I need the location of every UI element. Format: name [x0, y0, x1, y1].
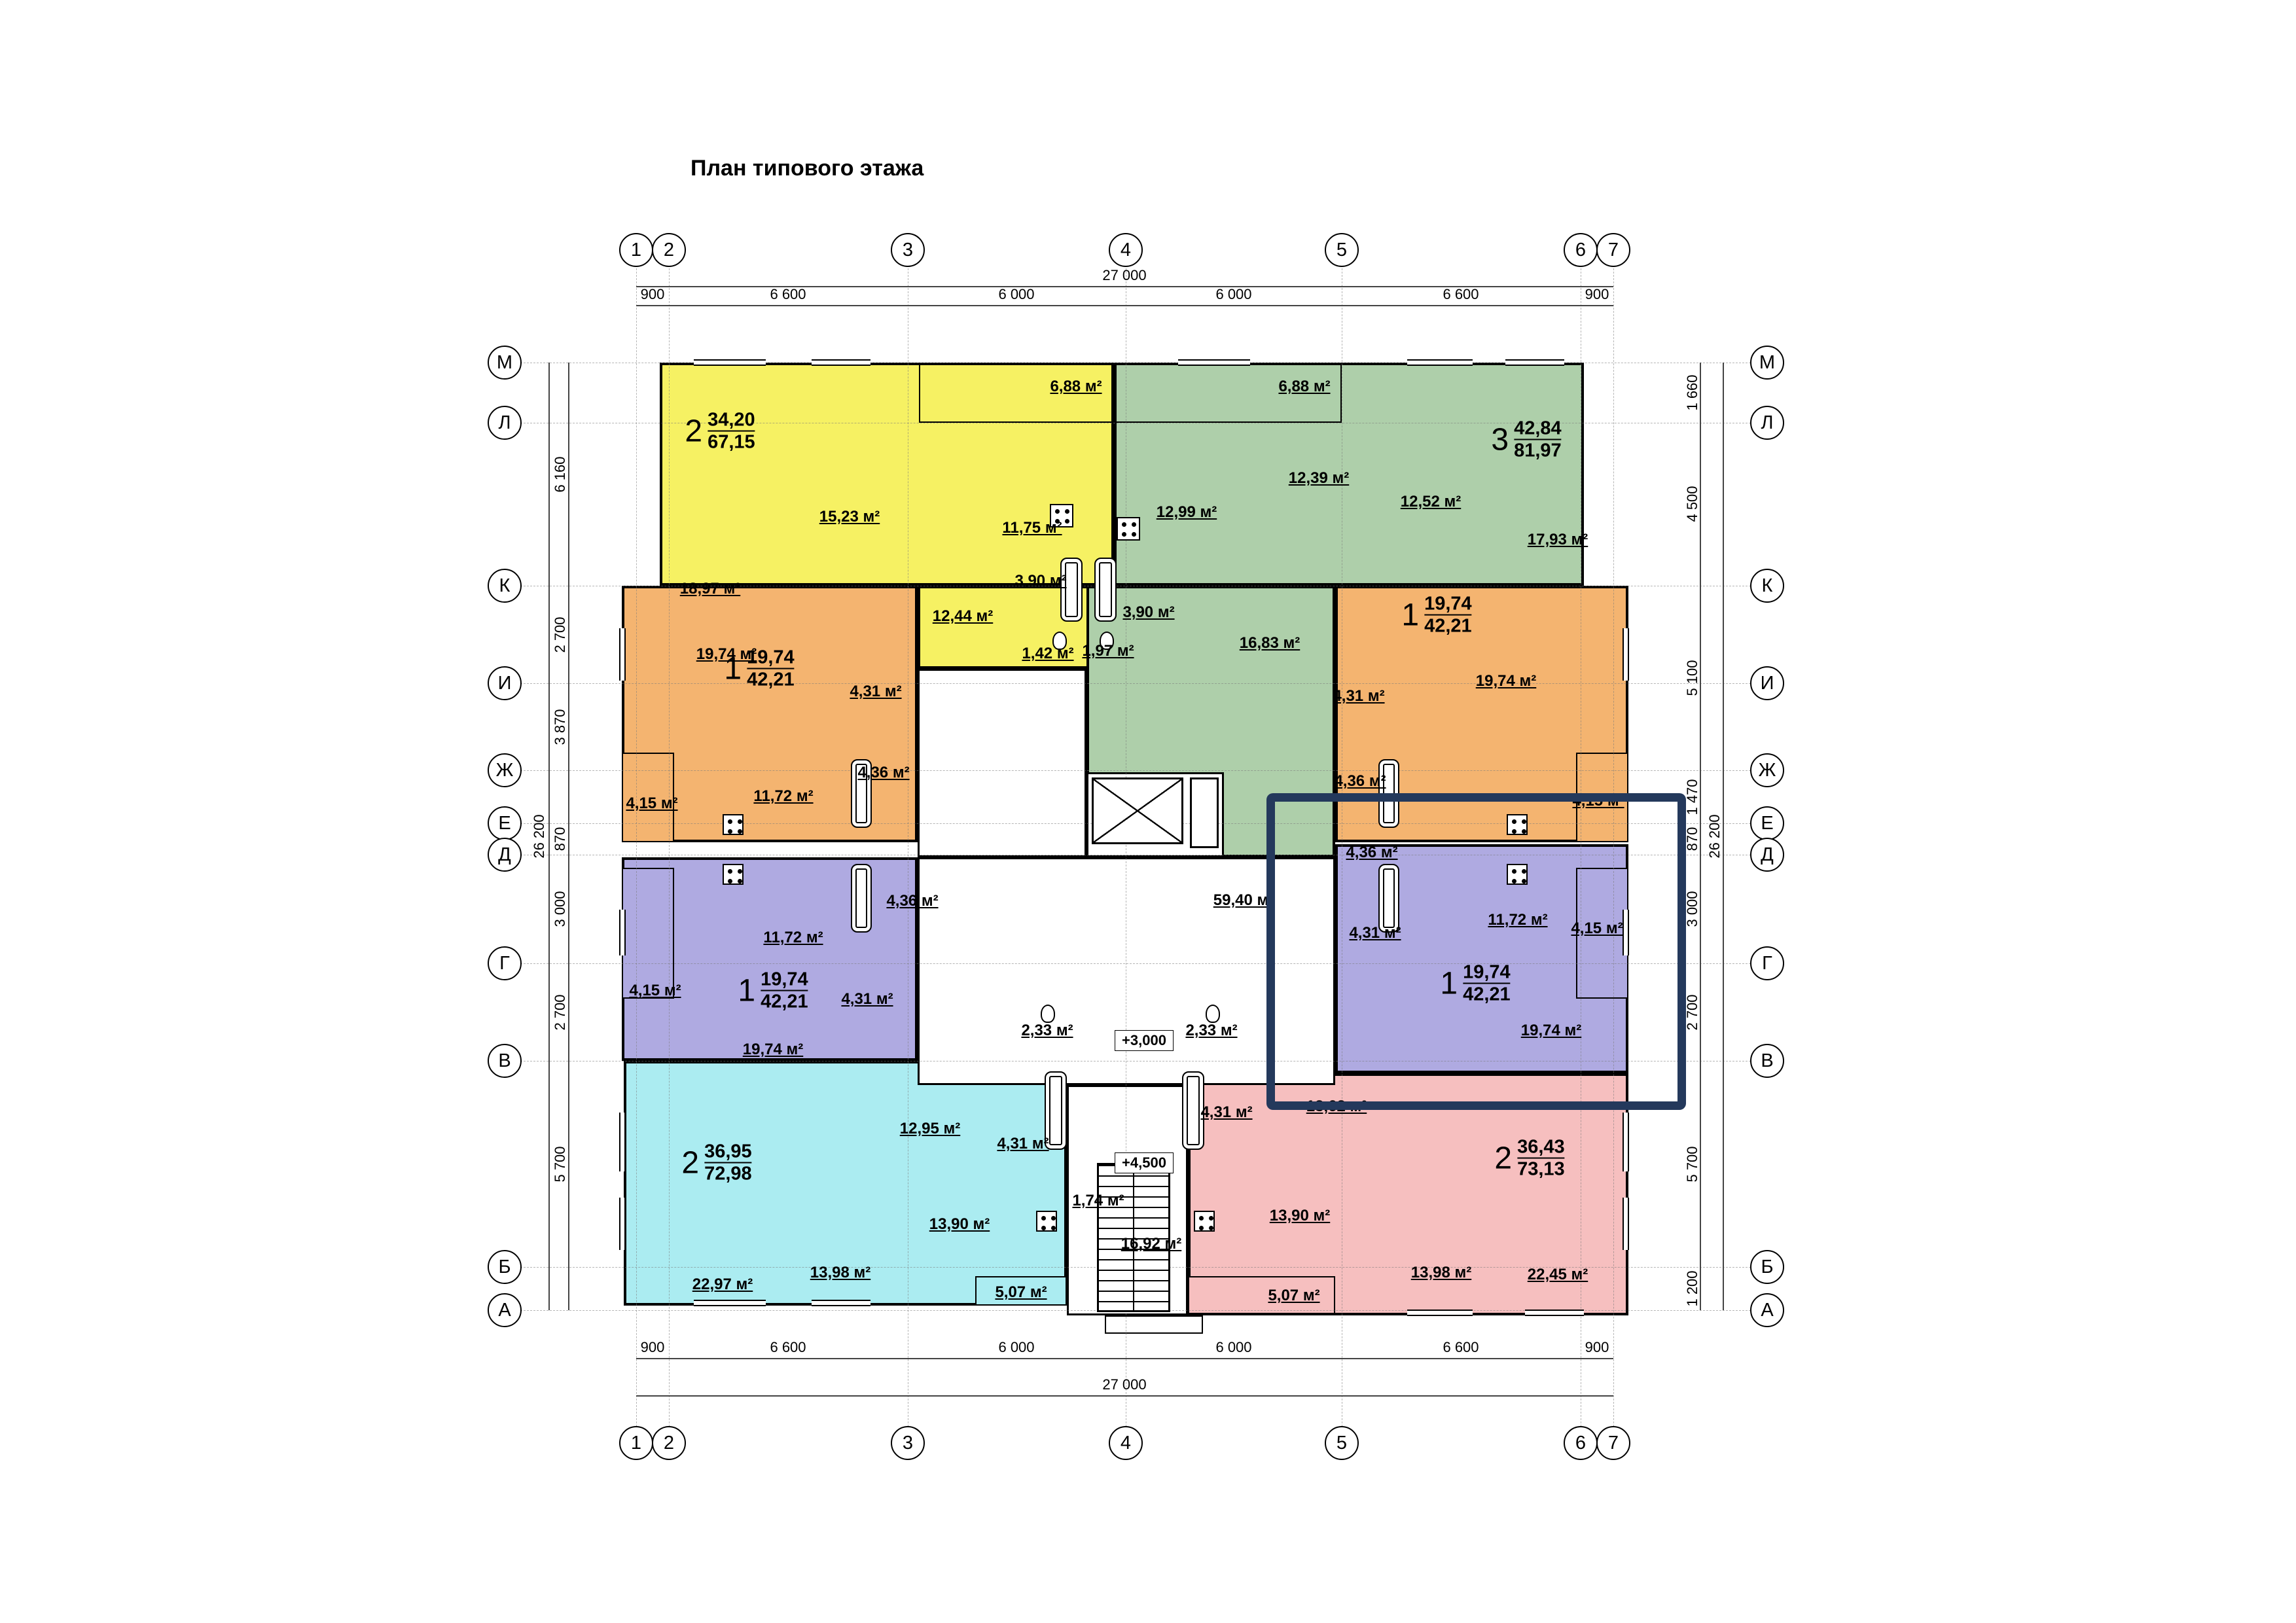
window	[694, 1300, 766, 1306]
dimension-total-label: 26 200	[1706, 814, 1723, 858]
window	[1623, 628, 1629, 681]
room-area-label: 12,44 м²	[933, 607, 993, 626]
window	[619, 910, 626, 955]
room-area-label: 2,33 м²	[1185, 1022, 1237, 1040]
entrance-porch	[1105, 1315, 1203, 1334]
grid-line	[520, 683, 1754, 684]
axis-circle-row: К	[1750, 569, 1784, 603]
dimension-label: 6 600	[770, 1339, 806, 1356]
axis-circle-row: Г	[1750, 946, 1784, 980]
window	[1623, 1198, 1629, 1250]
rooms-count: 3	[1491, 422, 1509, 458]
axis-circle-col: 5	[1325, 233, 1359, 267]
dimension-line	[636, 1358, 1613, 1359]
axis-circle-row: Л	[488, 406, 522, 440]
room-area-label: 13,90 м²	[1270, 1207, 1330, 1225]
dimension-label: 900	[1585, 286, 1609, 303]
room-area-label: 12,39 м²	[1289, 469, 1349, 488]
axis-circle-col: 3	[891, 233, 925, 267]
dimension-label: 6 000	[998, 286, 1034, 303]
dimension-label: 1 660	[1684, 374, 1701, 410]
room-area-label: 4,36 м²	[1334, 772, 1386, 791]
dimension-label: 5 700	[1684, 1146, 1701, 1182]
total-area: 67,15	[708, 432, 755, 453]
room-area-label: 11,75 м²	[1002, 519, 1062, 537]
apartment-label-green: 3 42,8481,97	[1491, 418, 1561, 462]
room-area-label: 11,72 м²	[763, 929, 823, 947]
axis-circle-row: А	[488, 1293, 522, 1327]
total-area: 42,21	[1424, 616, 1472, 637]
axis-circle-row: Ж	[488, 753, 522, 787]
axis-circle-col: 5	[1325, 1426, 1359, 1460]
stove-icon	[723, 864, 744, 885]
rooms-count: 2	[681, 1145, 699, 1181]
window	[1178, 359, 1250, 366]
elevator-shaft-small	[1190, 777, 1219, 848]
room-area-label: 22,45 м²	[1528, 1266, 1588, 1284]
room-area-label: 6,88 м²	[1050, 378, 1102, 396]
axis-circle-col: 3	[891, 1426, 925, 1460]
axis-circle-row: Л	[1750, 406, 1784, 440]
window	[1525, 1310, 1584, 1316]
room-area-label: 15,23 м²	[819, 508, 880, 526]
room-area-label: 3,90 м²	[1122, 603, 1174, 622]
room-area-label: 13,98 м²	[810, 1264, 870, 1282]
dimension-total-label: 26 200	[531, 814, 548, 858]
dimension-label: 900	[641, 1339, 665, 1356]
window	[812, 359, 870, 366]
window	[812, 1300, 870, 1306]
stove-icon	[1036, 1211, 1057, 1232]
axis-circle-col: 7	[1596, 1426, 1630, 1460]
living-area: 19,74	[761, 969, 808, 991]
dimension-label: 900	[641, 286, 665, 303]
stove-icon	[723, 814, 744, 835]
apartment-label-cyan: 2 36,9572,98	[681, 1141, 751, 1185]
level-mark: +4,500	[1115, 1152, 1174, 1173]
axis-circle-row: Б	[1750, 1250, 1784, 1284]
closet-area-label: 1,74 м²	[1072, 1192, 1124, 1210]
rooms-count: 2	[1494, 1141, 1512, 1177]
dimension-label: 3 870	[552, 709, 569, 745]
grid-line	[636, 265, 637, 1430]
rooms-count: 2	[685, 414, 702, 450]
axis-circle-row: Ж	[1750, 753, 1784, 787]
axis-circle-row: В	[1750, 1044, 1784, 1078]
balcony-purple-left	[622, 868, 674, 999]
grid-line	[520, 770, 1754, 771]
room-area-label: 4,15 м²	[629, 982, 681, 1000]
living-area: 19,74	[1424, 594, 1472, 616]
room-area-label: 13,90 м²	[929, 1215, 990, 1234]
axis-circle-row: И	[488, 666, 522, 700]
total-area: 72,98	[704, 1164, 752, 1185]
room-area-label: 4,31 м²	[841, 990, 893, 1008]
dimension-line	[548, 363, 550, 1310]
axis-circle-row: Б	[488, 1250, 522, 1284]
apartment-label-pink: 2 36,4373,13	[1494, 1137, 1564, 1181]
dimension-label: 4 500	[1684, 486, 1701, 522]
rooms-count: 1	[1401, 597, 1419, 633]
room-area-label: 4,31 м²	[1333, 687, 1384, 705]
floor-plan-page: { "title": "План типового этажа", "axes"…	[0, 0, 2296, 1623]
dimension-label: 6 000	[998, 1339, 1034, 1356]
axis-circle-row: Д	[1750, 838, 1784, 872]
room-area-label: 11,72 м²	[753, 787, 813, 806]
room-area-label: 2,33 м²	[1021, 1022, 1073, 1040]
dimension-label: 6 000	[1215, 1339, 1251, 1356]
bathtub-icon	[851, 864, 872, 933]
dimension-label: 27 000	[1102, 267, 1146, 284]
window	[1505, 359, 1564, 366]
elevator-icon	[1092, 777, 1183, 844]
room-area-label: 3,90 м²	[1014, 572, 1066, 590]
dimension-label: 27 000	[1102, 1376, 1146, 1393]
vestibule-area-label: 16,92 м²	[1121, 1235, 1181, 1253]
living-area: 42,84	[1514, 418, 1562, 440]
dimension-label: 870	[552, 827, 569, 851]
rooms-count: 1	[738, 973, 755, 1009]
grid-line	[908, 265, 908, 1430]
total-area: 42,21	[761, 991, 808, 1012]
room-area-label: 19,74 м²	[696, 645, 757, 664]
axis-circle-row: Е	[1750, 806, 1784, 840]
dimension-line	[636, 1395, 1613, 1397]
dimension-label: 3 000	[552, 891, 569, 927]
apartment-label-purple-left: 1 19,7442,21	[738, 969, 808, 1013]
axis-circle-col: 4	[1109, 233, 1143, 267]
axis-circle-row: Г	[488, 946, 522, 980]
living-area: 36,43	[1517, 1137, 1565, 1159]
room-area-label: 19,74 м²	[1476, 672, 1536, 690]
room-area-label: 18,97 м²	[680, 580, 740, 598]
total-area: 42,21	[747, 669, 795, 690]
page-title: План типового этажа	[691, 156, 924, 181]
apartment-label-yellow: 2 34,2067,15	[685, 410, 755, 454]
axis-circle-row: А	[1750, 1293, 1784, 1327]
total-area: 81,97	[1514, 440, 1562, 461]
room-area-label: 22,97 м²	[692, 1275, 753, 1294]
room-area-label: 1,97 м²	[1082, 642, 1134, 660]
axis-circle-row: Е	[488, 806, 522, 840]
dimension-label: 5 700	[552, 1146, 569, 1182]
dimension-label: 870	[1684, 827, 1701, 851]
axis-circle-row: В	[488, 1044, 522, 1078]
room-area-label: 4,31 м²	[997, 1135, 1049, 1153]
room-area-label: 4,31 м²	[850, 683, 901, 701]
axis-circle-col: 1	[619, 1426, 653, 1460]
toilet-icon	[1041, 1005, 1055, 1023]
stove-icon	[1117, 517, 1140, 541]
axis-circle-col: 6	[1564, 1426, 1598, 1460]
room-area-label: 4,15 м²	[626, 794, 677, 813]
axis-circle-col: 2	[652, 1426, 686, 1460]
dimension-label: 6 600	[1443, 1339, 1479, 1356]
room-area-label: 1,42 м²	[1022, 645, 1073, 663]
dimension-label: 6 600	[770, 286, 806, 303]
room-area-label: 17,93 м²	[1528, 531, 1588, 549]
dimension-label: 6 160	[552, 456, 569, 492]
room-area-label: 4,36 м²	[857, 764, 909, 782]
stove-icon	[1194, 1211, 1215, 1232]
dimension-label: 6 000	[1215, 286, 1251, 303]
room-area-label: 12,95 м²	[900, 1120, 960, 1138]
window	[1407, 359, 1473, 366]
dimension-label: 2 700	[552, 994, 569, 1030]
window	[619, 1198, 626, 1250]
axis-circle-row: М	[1750, 346, 1784, 380]
bathtub-icon	[1094, 558, 1117, 622]
corridor-left	[918, 669, 1086, 857]
axis-circle-col: 1	[619, 233, 653, 267]
highlight-box	[1266, 793, 1686, 1110]
dimension-label: 1 470	[1684, 779, 1701, 815]
axis-circle-row: К	[488, 569, 522, 603]
dimension-label: 2 700	[552, 616, 569, 652]
window	[619, 1113, 626, 1171]
dimension-label: 3 000	[1684, 891, 1701, 927]
axis-circle-row: М	[488, 346, 522, 380]
room-area-label: 19,74 м²	[743, 1041, 803, 1059]
room-area-label: 4,36 м²	[886, 892, 938, 910]
room-area-label: 5,07 м²	[1268, 1287, 1319, 1305]
dimension-label: 5 100	[1684, 660, 1701, 696]
total-area: 73,13	[1517, 1159, 1565, 1180]
apartment-label-orange-right: 1 19,7442,21	[1401, 594, 1471, 637]
axis-circle-col: 6	[1564, 233, 1598, 267]
dimension-label: 2 700	[1684, 994, 1701, 1030]
axis-circle-col: 4	[1109, 1426, 1143, 1460]
dimension-label: 1 200	[1684, 1270, 1701, 1306]
level-mark: +3,000	[1115, 1030, 1174, 1051]
window	[694, 359, 766, 366]
living-area: 36,95	[704, 1141, 752, 1164]
axis-circle-row: И	[1750, 666, 1784, 700]
window	[619, 628, 626, 681]
axis-circle-col: 7	[1596, 233, 1630, 267]
living-area: 34,20	[708, 410, 755, 432]
room-area-label: 12,99 м²	[1157, 503, 1217, 522]
dimension-label: 900	[1585, 1339, 1609, 1356]
room-area-label: 12,52 м²	[1401, 493, 1461, 511]
room-area-label: 16,83 м²	[1240, 634, 1300, 652]
dimension-label: 6 600	[1443, 286, 1479, 303]
room-area-label: 6,88 м²	[1278, 378, 1330, 396]
dimension-line	[636, 305, 1613, 306]
room-area-label: 4,31 м²	[1200, 1103, 1252, 1122]
grid-line	[669, 265, 670, 1430]
window	[1407, 1310, 1473, 1316]
axis-circle-row: Д	[488, 838, 522, 872]
room-area-label: 13,98 м²	[1411, 1264, 1471, 1282]
corridor-area-label: 59,40 м²	[1213, 891, 1274, 910]
room-area-label: 5,07 м²	[995, 1283, 1047, 1302]
toilet-icon	[1206, 1005, 1220, 1023]
window	[1623, 1113, 1629, 1171]
axis-circle-col: 2	[652, 233, 686, 267]
